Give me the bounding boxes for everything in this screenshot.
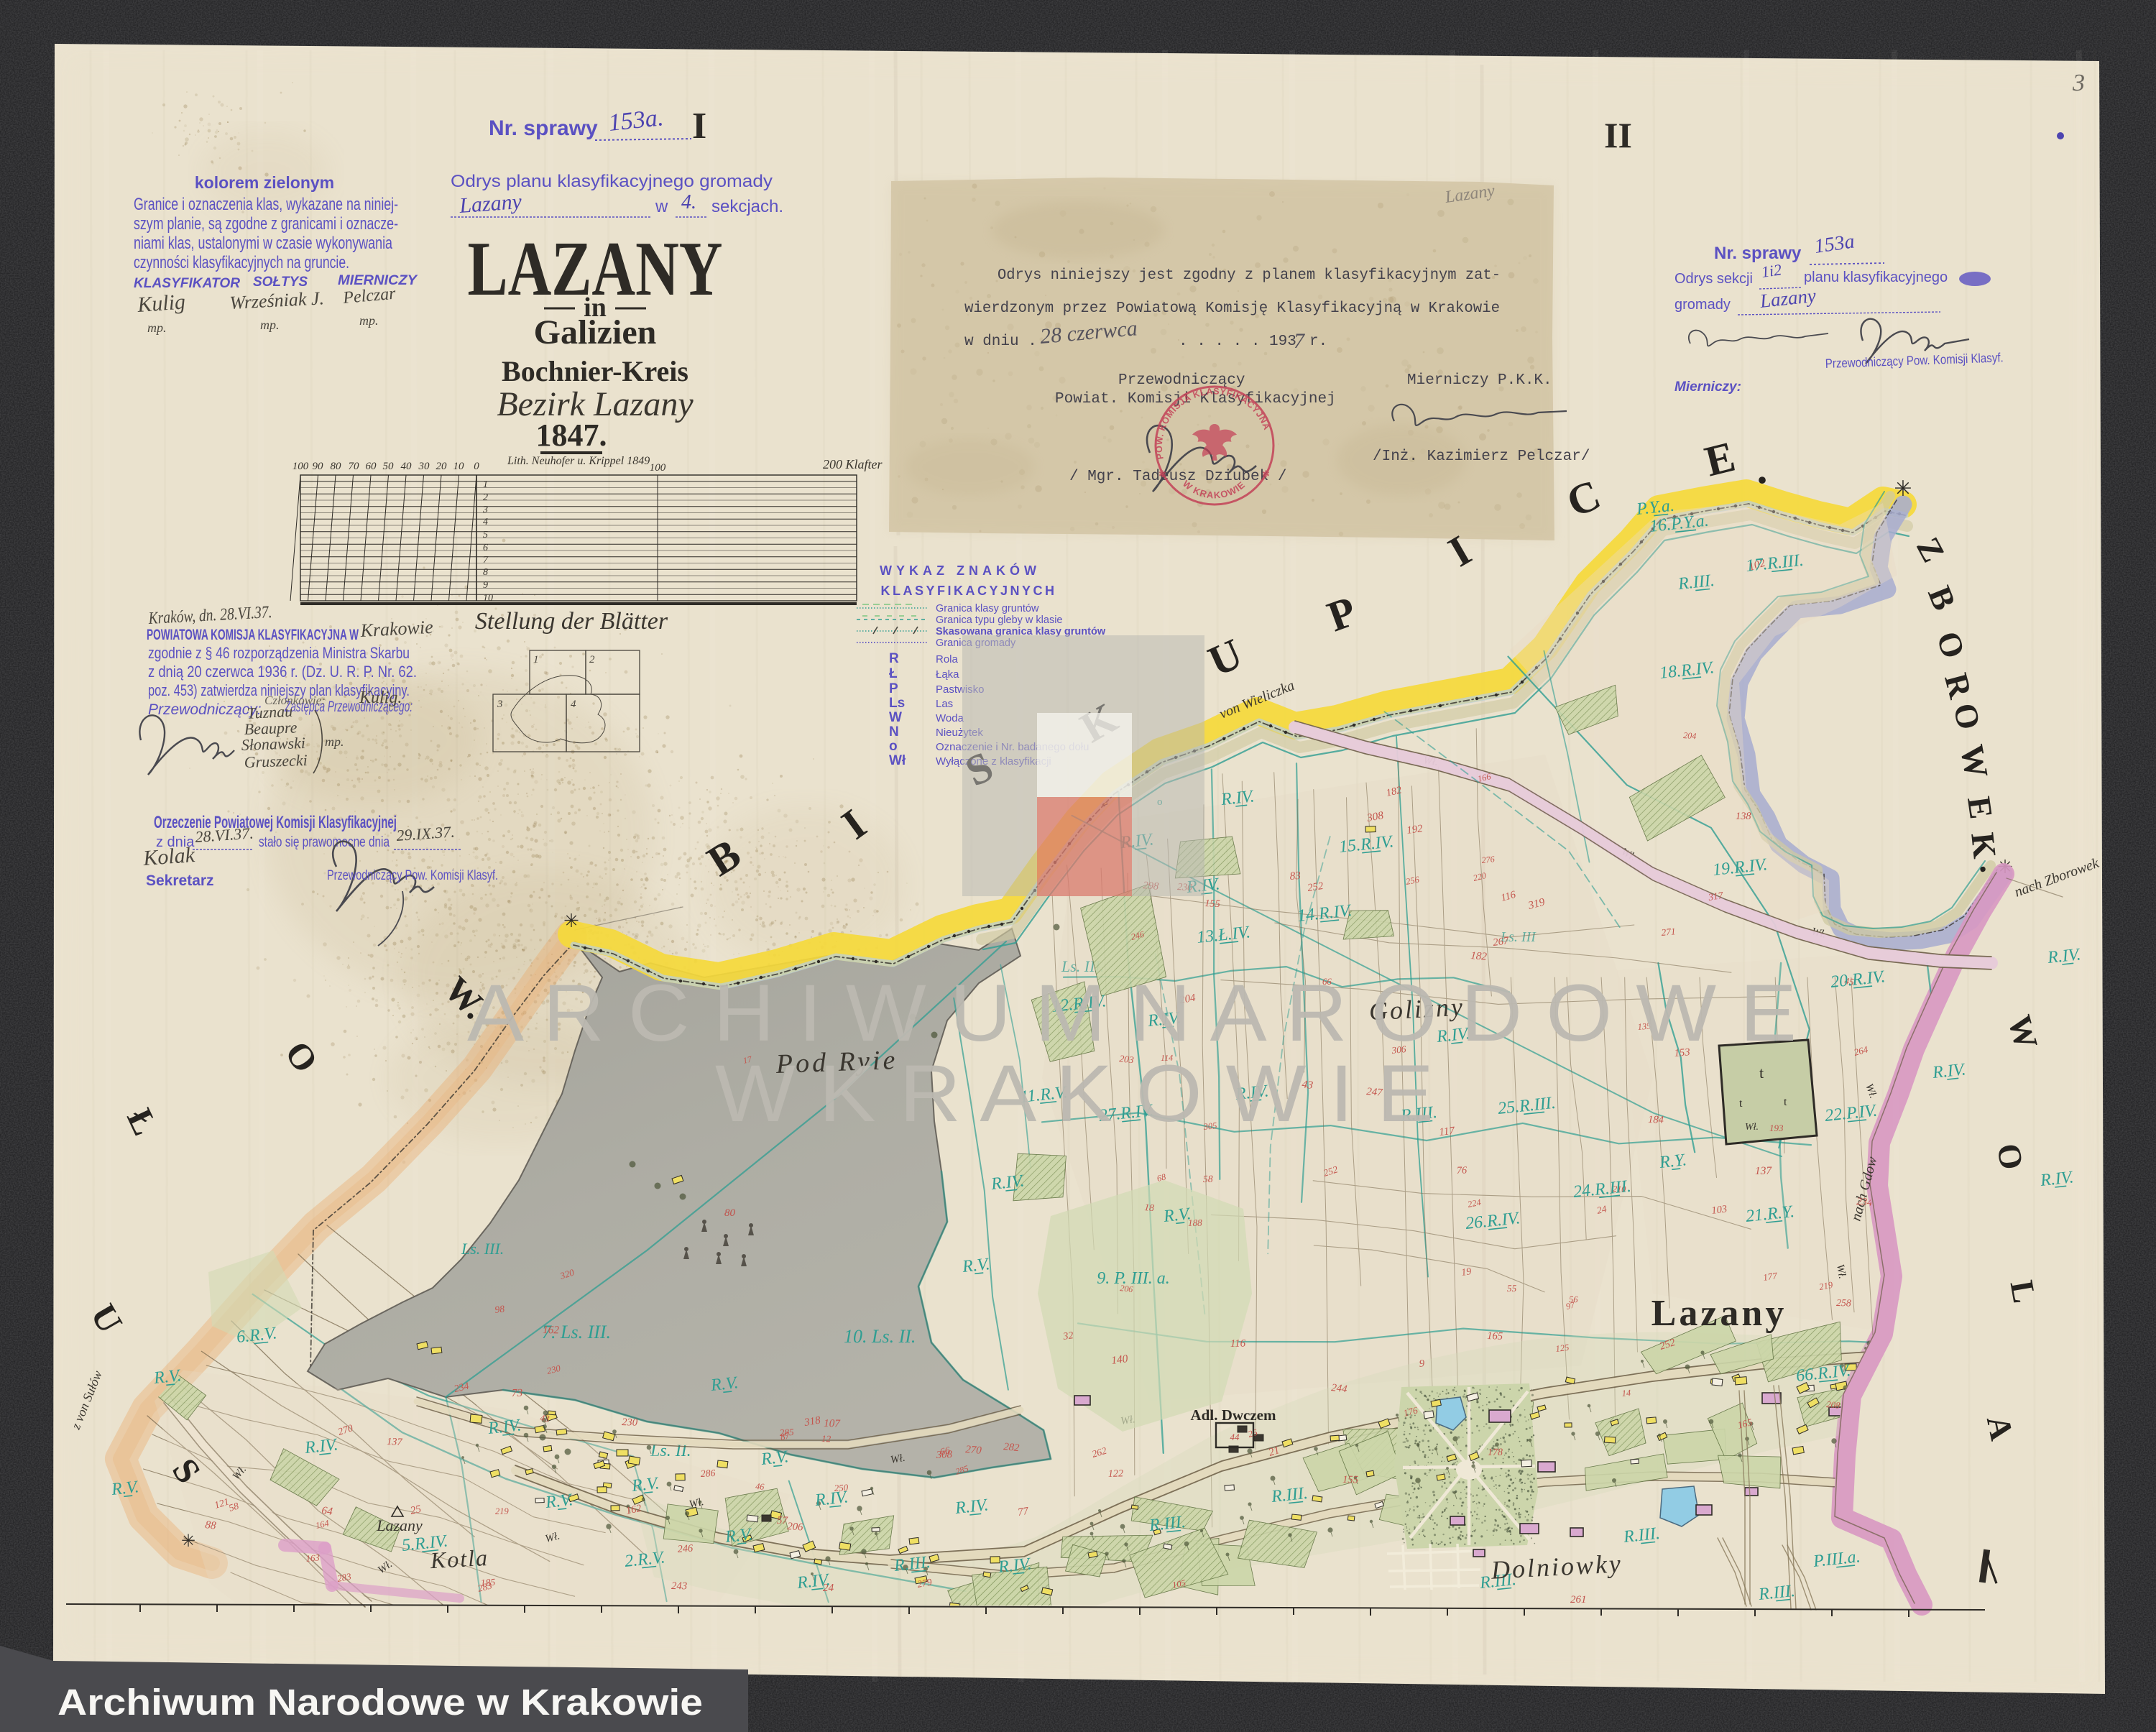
svg-text:zgodnie z § 46 rozporządzenia: zgodnie z § 46 rozporządzenia Ministra S… xyxy=(148,644,410,662)
svg-text:Ł: Ł xyxy=(889,666,898,681)
svg-text:100: 100 xyxy=(650,462,666,474)
svg-text:261: 261 xyxy=(1570,1594,1587,1606)
svg-text:230: 230 xyxy=(622,1417,638,1429)
svg-text:Kulig.: Kulig. xyxy=(359,688,402,707)
svg-text:208: 208 xyxy=(1826,1399,1841,1411)
svg-text:w: w xyxy=(655,197,668,216)
svg-text:107: 107 xyxy=(824,1417,842,1430)
svg-text:103: 103 xyxy=(1711,1203,1728,1217)
svg-text:Odrys sekcji: Odrys sekcji xyxy=(1674,271,1753,287)
svg-text:Przewodniczący:: Przewodniczący: xyxy=(148,701,262,718)
svg-text:155: 155 xyxy=(1342,1474,1358,1485)
svg-text:18: 18 xyxy=(1144,1202,1155,1213)
svg-text:o: o xyxy=(889,739,898,754)
svg-text:204: 204 xyxy=(1683,730,1697,741)
svg-text:1i2: 1i2 xyxy=(1760,260,1782,281)
svg-text:P: P xyxy=(889,681,898,696)
svg-text:t: t xyxy=(1759,1064,1764,1082)
svg-text:t: t xyxy=(1784,1096,1787,1108)
svg-text:3: 3 xyxy=(497,699,503,710)
svg-text:46: 46 xyxy=(755,1481,765,1492)
svg-text:Odrys planu klasyfikacyjnego g: Odrys planu klasyfikacyjnego gromady xyxy=(451,172,773,191)
svg-text:Stellung der Blätter: Stellung der Blätter xyxy=(475,608,668,635)
svg-text:2: 2 xyxy=(483,492,488,503)
svg-text:Adl. Dwczem: Adl. Dwczem xyxy=(1191,1406,1276,1424)
svg-text:W: W xyxy=(1953,742,1995,780)
svg-text:286: 286 xyxy=(700,1468,716,1479)
svg-text:56: 56 xyxy=(1569,1294,1579,1304)
svg-text:163: 163 xyxy=(305,1552,320,1564)
svg-text:10. Ls. II.: 10. Ls. II. xyxy=(844,1326,916,1347)
svg-text:Kulig: Kulig xyxy=(136,290,186,317)
svg-text:57: 57 xyxy=(777,1515,788,1526)
svg-text:1: 1 xyxy=(533,654,539,665)
svg-text:244: 244 xyxy=(1331,1382,1348,1395)
svg-text:Kolak: Kolak xyxy=(142,843,195,870)
svg-text:4: 4 xyxy=(483,517,488,528)
svg-text:Bochnier-Kreis: Bochnier-Kreis xyxy=(502,355,688,387)
svg-text:8: 8 xyxy=(483,567,488,578)
svg-text:80: 80 xyxy=(724,1207,736,1219)
svg-text:178: 178 xyxy=(1488,1447,1503,1458)
svg-text:73: 73 xyxy=(512,1387,523,1399)
svg-text:19: 19 xyxy=(1460,1266,1472,1279)
svg-text:A R C H I W U M N A R O D O: A R C H I W U M N A R O D O W E xyxy=(467,968,1797,1058)
svg-text:192: 192 xyxy=(1406,823,1424,837)
svg-text:43: 43 xyxy=(540,1412,550,1424)
svg-text:N: N xyxy=(889,724,899,740)
svg-text:sekcjach.: sekcjach. xyxy=(711,197,783,216)
svg-text:10: 10 xyxy=(453,461,465,472)
svg-text:Mierniczy:: Mierniczy: xyxy=(1674,379,1741,395)
svg-text:3: 3 xyxy=(2072,70,2085,96)
svg-text:206: 206 xyxy=(1120,1283,1134,1294)
svg-text:Ls. III.: Ls. III. xyxy=(461,1240,504,1258)
svg-text:/ Mgr. Tadeusz Dziubek /: / Mgr. Tadeusz Dziubek / xyxy=(1069,469,1286,485)
svg-text:Gruszecki: Gruszecki xyxy=(244,751,308,771)
svg-text:10: 10 xyxy=(483,593,493,604)
svg-text:206: 206 xyxy=(787,1521,804,1534)
svg-text:Krakowie: Krakowie xyxy=(359,617,433,641)
svg-text:55: 55 xyxy=(1507,1283,1517,1294)
svg-text:planu klasyfikacyjnego: planu klasyfikacyjnego xyxy=(1804,270,1948,285)
svg-text:K: K xyxy=(1964,831,2003,860)
svg-text:✱: ✱ xyxy=(1158,469,1166,479)
svg-text:szym planie, są zgodne z grani: szym planie, są zgodne z granicami i ozn… xyxy=(134,214,398,234)
svg-text:177: 177 xyxy=(1762,1270,1778,1283)
svg-text:Woda: Woda xyxy=(936,712,964,724)
svg-text:155: 155 xyxy=(1204,898,1220,910)
svg-text:Lazany: Lazany xyxy=(458,190,522,218)
svg-text:Przewodniczący: Przewodniczący xyxy=(1118,372,1245,389)
svg-text:Orzeczenie Powiatowej Komisji: Orzeczenie Powiatowej Komisji Klasyfikac… xyxy=(154,813,397,832)
svg-text:122: 122 xyxy=(1108,1468,1124,1480)
svg-text:Ls: Ls xyxy=(889,696,905,711)
svg-text:Nr. sprawy: Nr. sprawy xyxy=(1714,244,1802,263)
svg-text:80: 80 xyxy=(331,461,342,472)
svg-text:I: I xyxy=(692,106,706,147)
svg-text:Lazany: Lazany xyxy=(1651,1293,1787,1334)
svg-text:88: 88 xyxy=(205,1519,217,1532)
svg-text:83: 83 xyxy=(1289,870,1302,883)
svg-text:stało się prawomocne dnia: stało się prawomocne dnia xyxy=(259,834,390,850)
svg-text:mp.: mp. xyxy=(359,313,379,328)
svg-text:Archiwum Narodowe w Krakowie: Archiwum Narodowe w Krakowie xyxy=(57,1682,703,1723)
svg-text:Wł: Wł xyxy=(889,753,906,768)
svg-text:276: 276 xyxy=(1481,854,1495,865)
svg-text:58: 58 xyxy=(1203,1174,1213,1184)
svg-text:II: II xyxy=(1604,115,1632,155)
svg-text:138: 138 xyxy=(1736,811,1752,822)
svg-text:R: R xyxy=(889,651,899,666)
svg-text:7: 7 xyxy=(483,555,489,566)
svg-text:niami klas, ustalonymi w czasi: niami klas, ustalonymi w czasie wykonywa… xyxy=(134,234,392,253)
svg-text:Nr. sprawy: Nr. sprawy xyxy=(489,116,598,140)
svg-text:1847.: 1847. xyxy=(536,418,607,453)
svg-text:64: 64 xyxy=(321,1504,333,1518)
svg-text:. . . . . 193: . . . . . 193 xyxy=(1179,333,1296,350)
svg-text:Rola: Rola xyxy=(936,653,959,665)
svg-text:0: 0 xyxy=(474,461,479,472)
svg-text:7: 7 xyxy=(1294,329,1306,353)
svg-text:219: 219 xyxy=(495,1506,510,1516)
svg-text:252: 252 xyxy=(1307,880,1325,894)
svg-text:12: 12 xyxy=(821,1433,831,1444)
svg-text:POWIATOWA KOMISJA KLASYFIKACYJ: POWIATOWA KOMISJA KLASYFIKACYJNA W xyxy=(147,627,359,643)
svg-text:44: 44 xyxy=(1230,1432,1240,1442)
svg-text:Lazany: Lazany xyxy=(376,1516,423,1534)
svg-text:246: 246 xyxy=(677,1542,694,1555)
svg-text:14: 14 xyxy=(1621,1388,1631,1399)
svg-text:137: 137 xyxy=(387,1436,403,1448)
svg-text:KLASYFIKATOR: KLASYFIKATOR xyxy=(134,276,240,291)
svg-text:40: 40 xyxy=(401,461,413,472)
svg-text:Kotla: Kotla xyxy=(429,1544,489,1573)
svg-text:W: W xyxy=(889,710,902,725)
svg-text:KLASYFIKACYJNYCH: KLASYFIKACYJNYCH xyxy=(880,584,1056,598)
svg-text:mp.: mp. xyxy=(325,734,344,749)
svg-text:/Inż. Kazimierz Pelczar/: /Inż. Kazimierz Pelczar/ xyxy=(1373,448,1590,465)
svg-text:gromady: gromady xyxy=(1674,297,1731,313)
svg-text:Granice i oznaczenia klas, wyk: Granice i oznaczenia klas, wykazane na n… xyxy=(134,195,398,214)
svg-text:czynności klasyfikacyjnych na: czynności klasyfikacyjnych na gruncie. xyxy=(134,253,349,272)
svg-text:100: 100 xyxy=(292,461,309,472)
svg-text:258: 258 xyxy=(1836,1297,1851,1309)
svg-text:4.: 4. xyxy=(681,191,696,213)
svg-text:6: 6 xyxy=(483,543,488,553)
svg-text:271: 271 xyxy=(1661,926,1676,938)
svg-text:184: 184 xyxy=(1648,1114,1664,1126)
svg-text:267: 267 xyxy=(1492,935,1509,949)
svg-text:125: 125 xyxy=(1555,1342,1570,1354)
svg-text:Odrys niniejszy jest zgodny z: Odrys niniejszy jest zgodny z planem kla… xyxy=(998,267,1501,284)
svg-text:9: 9 xyxy=(483,580,488,591)
svg-text:Przewodniczący Pow. Komisji Kl: Przewodniczący Pow. Komisji Klasyf. xyxy=(327,868,498,883)
svg-text:76: 76 xyxy=(1457,1165,1468,1176)
svg-text:wierdzonym przez Powiatową Kom: wierdzonym przez Powiatową Komisję Klasy… xyxy=(964,300,1500,317)
svg-text:.: . xyxy=(1757,445,1768,492)
svg-text:70: 70 xyxy=(349,461,360,472)
svg-text:32: 32 xyxy=(1061,1330,1074,1342)
svg-text:Sekretarz: Sekretarz xyxy=(146,872,214,889)
svg-text:Galizien: Galizien xyxy=(534,313,657,351)
svg-text:z dnią 20 czerwca 1936 r. (Dz.: z dnią 20 czerwca 1936 r. (Dz. U. R. P. … xyxy=(148,663,417,681)
svg-text:117: 117 xyxy=(1439,1125,1457,1138)
svg-text:2: 2 xyxy=(589,654,595,665)
svg-text:270: 270 xyxy=(965,1444,982,1457)
svg-text:Las: Las xyxy=(936,698,953,710)
svg-text:193: 193 xyxy=(1769,1123,1784,1133)
svg-text:243: 243 xyxy=(671,1580,687,1592)
svg-text:137: 137 xyxy=(1755,1165,1773,1177)
svg-text:4: 4 xyxy=(571,699,576,710)
svg-text:SOŁTYS: SOŁTYS xyxy=(253,275,308,290)
svg-text:162: 162 xyxy=(543,1324,560,1336)
svg-text:98: 98 xyxy=(494,1303,505,1315)
svg-text:Łąka: Łąka xyxy=(936,668,959,681)
svg-text:WYKAZ ZNAKÓW: WYKAZ ZNAKÓW xyxy=(880,563,1041,578)
svg-text:185: 185 xyxy=(480,1577,496,1588)
svg-text:5: 5 xyxy=(483,530,488,540)
svg-text:30: 30 xyxy=(418,461,430,472)
svg-text:60: 60 xyxy=(366,461,377,472)
svg-text:116: 116 xyxy=(1230,1338,1246,1350)
svg-text:Granica typu gleby w klasie: Granica typu gleby w klasie xyxy=(936,614,1063,626)
svg-text:✳: ✳ xyxy=(563,911,579,931)
svg-text:W K R A K O W I E: W K R A K O W I E xyxy=(715,1049,1434,1138)
svg-text:w dniu .: w dniu . xyxy=(964,333,1037,350)
svg-text:Lith. Neuhofer u. Krippel 1849: Lith. Neuhofer u. Krippel 1849 xyxy=(507,455,650,467)
svg-text:182: 182 xyxy=(1470,950,1488,963)
svg-text:3: 3 xyxy=(482,505,488,515)
svg-text:r.: r. xyxy=(1309,333,1327,350)
svg-text:t: t xyxy=(1739,1097,1743,1110)
svg-text:✳: ✳ xyxy=(181,1532,195,1551)
svg-text:200 Klafter: 200 Klafter xyxy=(823,457,883,471)
svg-text:Mierniczy P.K.K.: Mierniczy P.K.K. xyxy=(1407,372,1552,389)
svg-text:90: 90 xyxy=(313,461,324,472)
svg-text:kolorem zielonym: kolorem zielonym xyxy=(195,173,334,192)
svg-text:165: 165 xyxy=(1487,1330,1503,1342)
svg-text:✳: ✳ xyxy=(1894,477,1912,501)
svg-text:✱: ✱ xyxy=(1262,469,1270,479)
svg-text:20: 20 xyxy=(436,461,448,472)
svg-text:1: 1 xyxy=(483,479,488,490)
svg-text:282: 282 xyxy=(1003,1441,1021,1454)
svg-text:140: 140 xyxy=(1110,1353,1128,1367)
svg-text:mp.: mp. xyxy=(147,321,167,335)
svg-text:Wł.: Wł. xyxy=(1745,1122,1759,1133)
svg-text:mp.: mp. xyxy=(260,318,280,332)
svg-text:50: 50 xyxy=(383,461,395,472)
svg-text:Granica klasy gruntów: Granica klasy gruntów xyxy=(936,603,1039,614)
